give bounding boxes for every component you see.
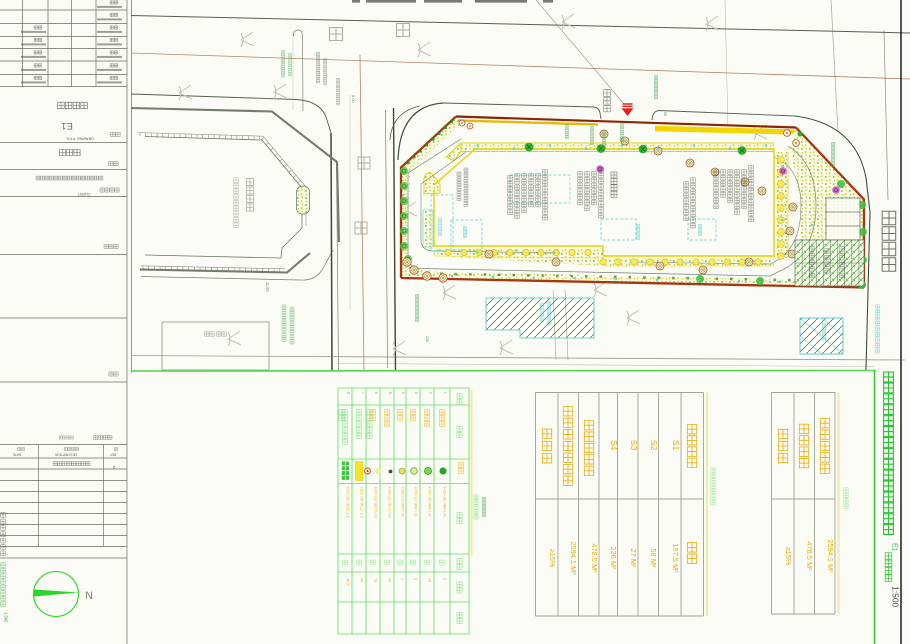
svg-text:3: 3 — [414, 578, 418, 580]
svg-text:DESCRIPTION: DESCRIPTION — [54, 453, 76, 457]
svg-text:7: 7 — [360, 392, 365, 395]
svg-text:1:500: 1:500 — [4, 612, 9, 623]
svg-text:DRAWING TITLE: DRAWING TITLE — [66, 137, 94, 141]
svg-text:26: 26 — [845, 180, 849, 184]
svg-text:H200-230 W105-100: H200-230 W105-100 — [374, 487, 378, 519]
svg-text:H160-190 W85-100: H160-190 W85-100 — [428, 487, 432, 517]
svg-text:H220-250 W115-100: H220-250 W115-100 — [346, 487, 350, 518]
svg-text:H180-210 W95-100: H180-210 W95-100 — [401, 487, 405, 517]
svg-text:6: 6 — [374, 392, 379, 395]
svg-text:H170-200 W90-100: H170-200 W90-100 — [414, 487, 418, 517]
svg-text:478.5 M²: 478.5 M² — [590, 543, 599, 573]
svg-text:2594.1 M²: 2594.1 M² — [826, 539, 835, 573]
svg-text:5: 5 — [388, 392, 393, 395]
svg-text:S4: S4 — [609, 440, 619, 451]
svg-text:E1: E1 — [61, 120, 73, 131]
svg-text:E1: E1 — [891, 543, 898, 552]
svg-text:1: 1 — [401, 578, 405, 580]
svg-text:S2: S2 — [649, 440, 659, 451]
svg-text:1:500: 1:500 — [891, 586, 901, 608]
svg-text:DATE: DATE — [13, 453, 21, 457]
svg-text:≥15%: ≥15% — [784, 547, 793, 566]
svg-text:N: N — [85, 590, 93, 602]
svg-text:4: 4 — [401, 392, 406, 395]
svg-text:2594.1 M²: 2594.1 M² — [569, 541, 578, 575]
svg-text:58 M²: 58 M² — [649, 549, 658, 568]
svg-text:40: 40 — [360, 578, 364, 582]
svg-text:478.5 M²: 478.5 M² — [805, 541, 814, 571]
svg-text:S3: S3 — [629, 440, 639, 451]
svg-text:REV: REV — [109, 453, 116, 457]
svg-text:2: 2 — [428, 392, 433, 395]
svg-text:13: 13 — [374, 578, 378, 582]
svg-text:H150-180 W80-100: H150-180 W80-100 — [443, 487, 447, 517]
svg-text:5.00: 5.00 — [351, 95, 356, 104]
svg-text:11.60: 11.60 — [265, 282, 270, 292]
svg-text:1: 1 — [443, 392, 448, 395]
svg-text:≥15%: ≥15% — [548, 549, 557, 568]
svg-text:157.5 M²: 157.5 M² — [671, 543, 680, 573]
svg-text:H190-220 W100-100: H190-220 W100-100 — [388, 487, 392, 519]
svg-text:H210-240 W110-100: H210-240 W110-100 — [360, 487, 364, 518]
svg-text:27 M²: 27 M² — [629, 549, 638, 568]
svg-text:236: 236 — [425, 336, 429, 342]
svg-text:45: 45 — [388, 578, 392, 582]
svg-text:CLIENT: CLIENT — [77, 192, 90, 196]
svg-text:S1: S1 — [671, 440, 681, 451]
svg-text:6: 6 — [443, 578, 447, 580]
svg-text:236 M²: 236 M² — [609, 546, 618, 570]
svg-text:40.5: 40.5 — [346, 578, 350, 585]
svg-text:3: 3 — [414, 392, 419, 395]
svg-text:58: 58 — [663, 112, 667, 116]
svg-text:28: 28 — [428, 578, 432, 582]
svg-text:8: 8 — [346, 392, 351, 395]
